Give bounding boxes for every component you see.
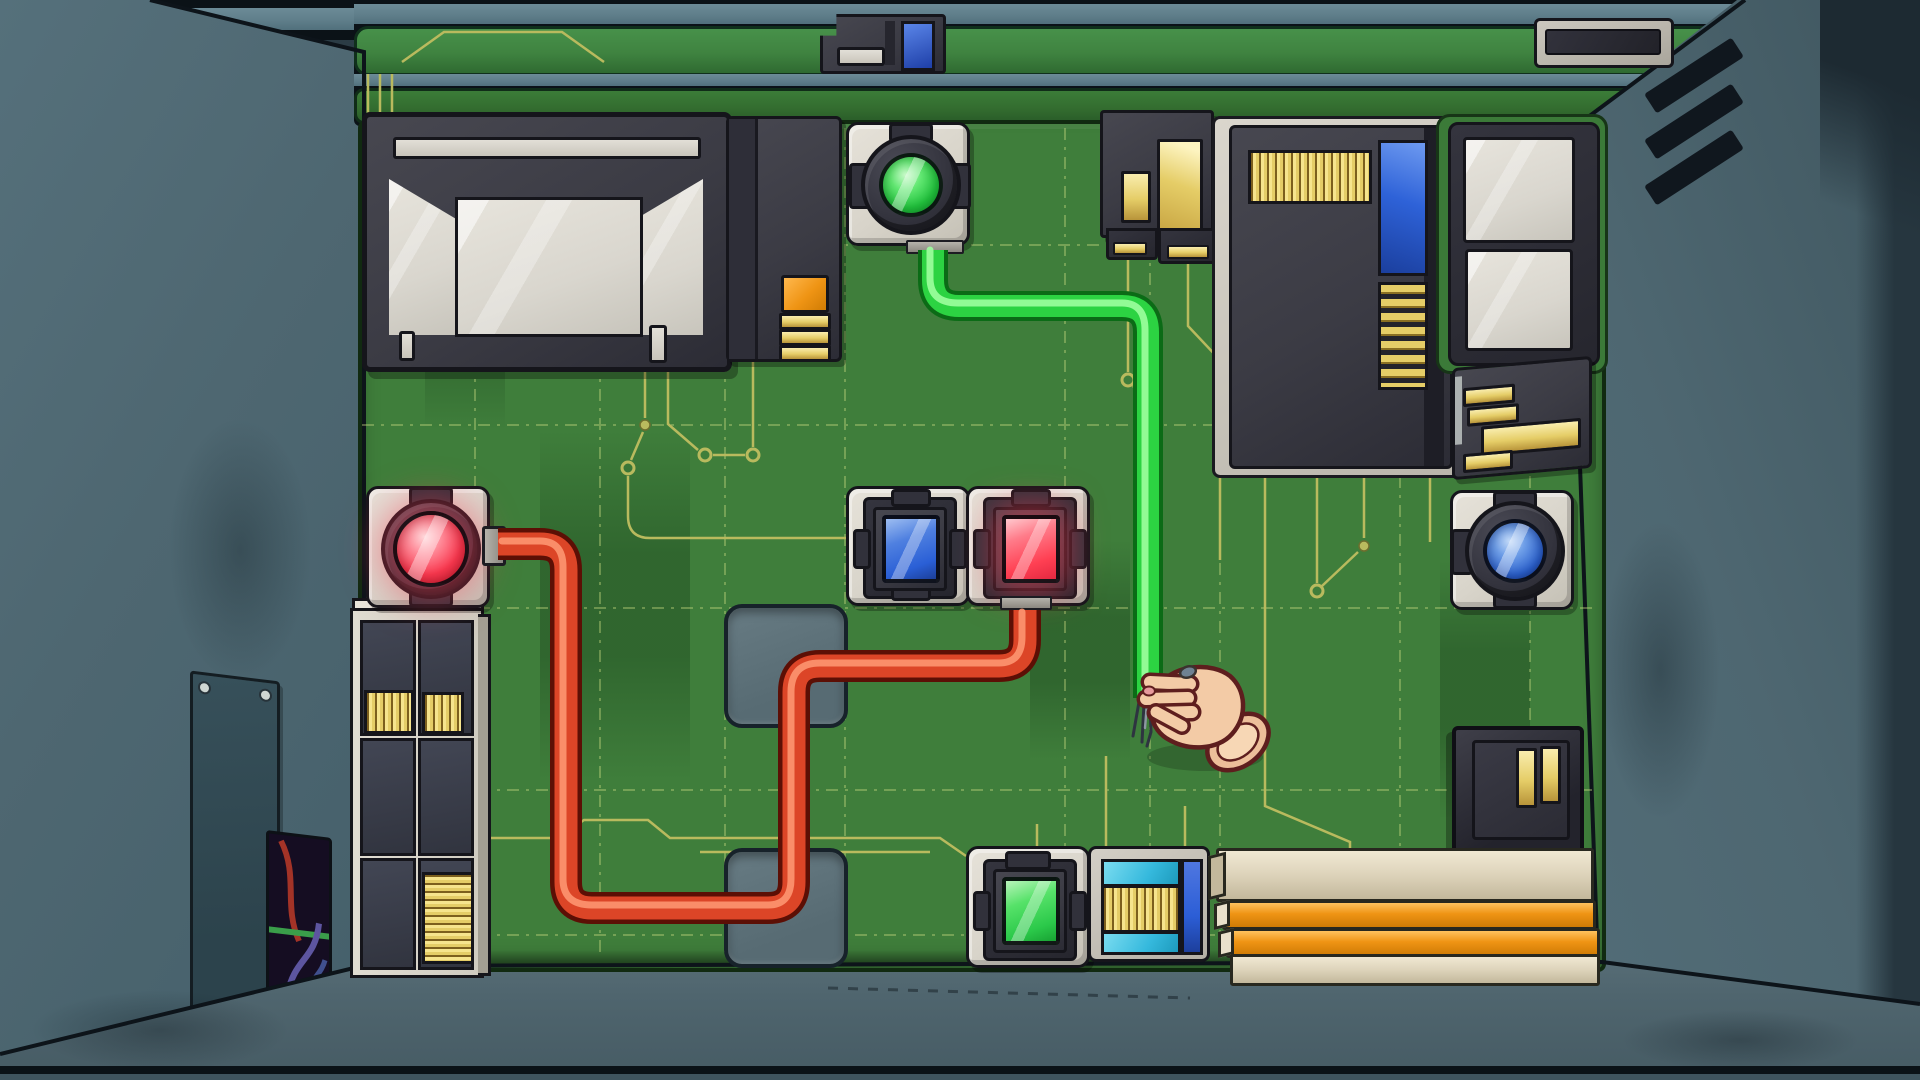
fingernail [1143, 687, 1155, 696]
scene-room [0, 0, 1920, 1080]
red-cable[interactable] [498, 541, 1025, 908]
cable-layer [0, 0, 1920, 1080]
